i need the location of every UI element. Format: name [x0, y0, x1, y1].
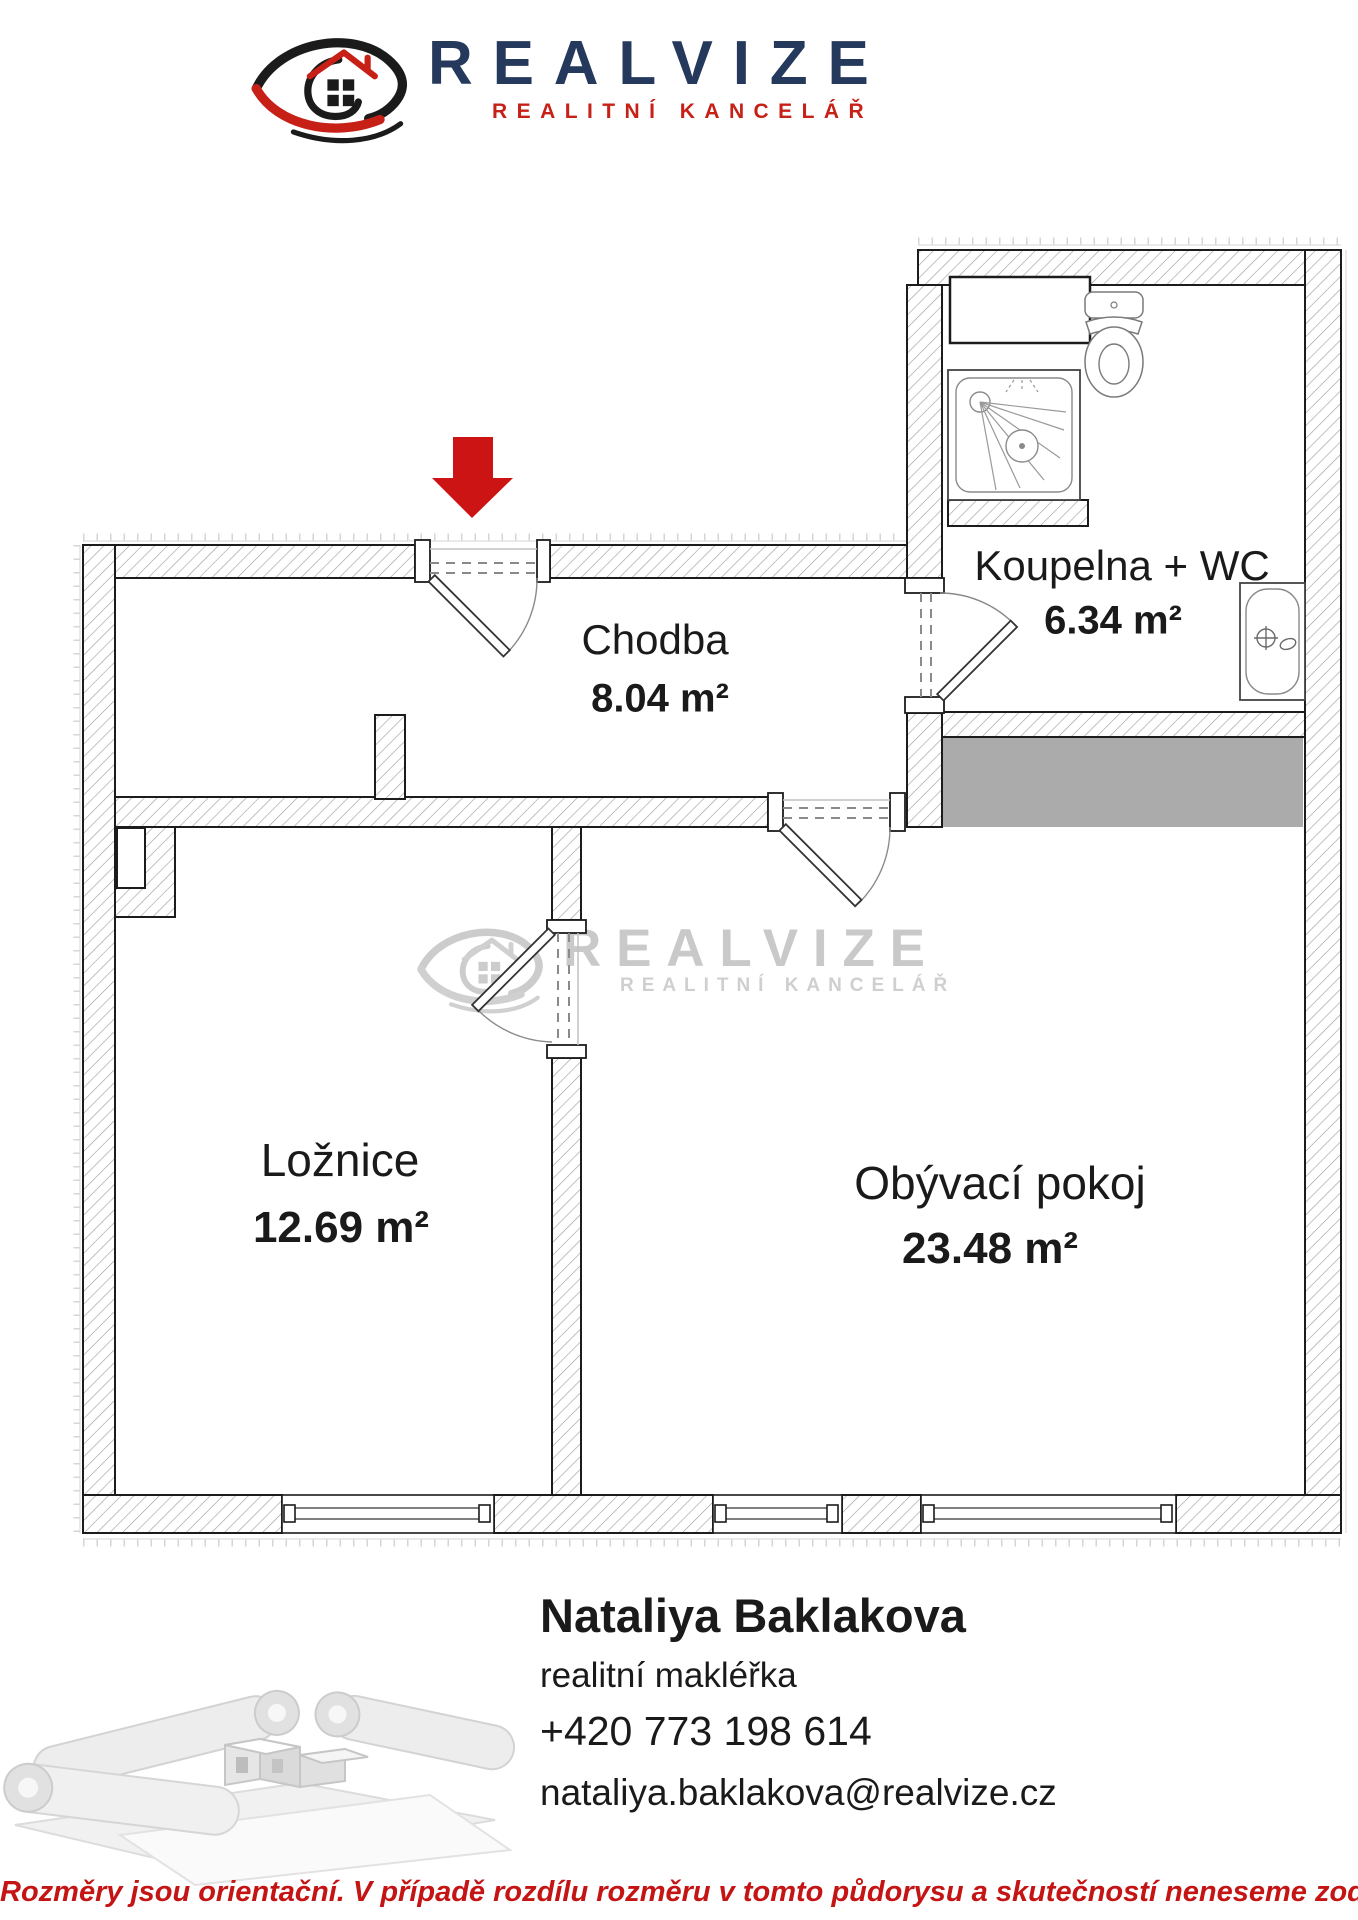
flyer-page: REALVIZE REALITNÍ KANCELÁŘ REALVIZE REAL… [0, 0, 1358, 1920]
neighbor-area [942, 738, 1303, 827]
realvize-logo-icon [248, 22, 413, 147]
living-room-window-2 [921, 1495, 1176, 1533]
living-room-window-1 [713, 1495, 842, 1533]
windows [282, 1495, 1176, 1533]
bathtub-icon [1240, 583, 1305, 700]
bedroom-window [282, 1495, 494, 1533]
agent-phone: +420 773 198 614 [540, 1708, 872, 1755]
bedroom-wall-niche [117, 828, 145, 888]
bathroom-door [921, 593, 1017, 701]
logo-house-window [327, 79, 354, 106]
room-label-obyvaci: Obývací pokoj [854, 1156, 1145, 1210]
agent-email: nataliya.baklakova@realvize.cz [540, 1772, 1057, 1814]
room-label-chodba: Chodba [581, 616, 728, 664]
room-area-koupelna: 6.34 m² [1044, 599, 1182, 644]
ruler-ticks [77, 241, 1346, 1543]
room-area-loznice: 12.69 m² [253, 1203, 429, 1253]
entrance-arrow-icon [432, 437, 513, 518]
agent-role: realitní makléřka [540, 1656, 797, 1696]
room-label-loznice: Ložnice [261, 1133, 420, 1187]
entrance-door [428, 549, 537, 656]
blueprint-photo [0, 1635, 520, 1895]
bedroom-door [472, 928, 578, 1045]
walls [83, 250, 1341, 1533]
agent-name: Nataliya Baklakova [540, 1588, 966, 1643]
bathroom-wall-niche [950, 277, 1090, 343]
room-area-chodba: 8.04 m² [591, 677, 729, 722]
disclaimer-text: Rozměry jsou orientační. V případě rozdí… [0, 1876, 1358, 1909]
room-area-obyvaci: 23.48 m² [902, 1224, 1078, 1274]
living-room-door [779, 800, 890, 906]
toilet-icon [1085, 292, 1143, 397]
house-model [225, 1739, 368, 1787]
room-label-koupelna: Koupelna + WC [974, 542, 1269, 590]
shower-icon [948, 370, 1080, 500]
